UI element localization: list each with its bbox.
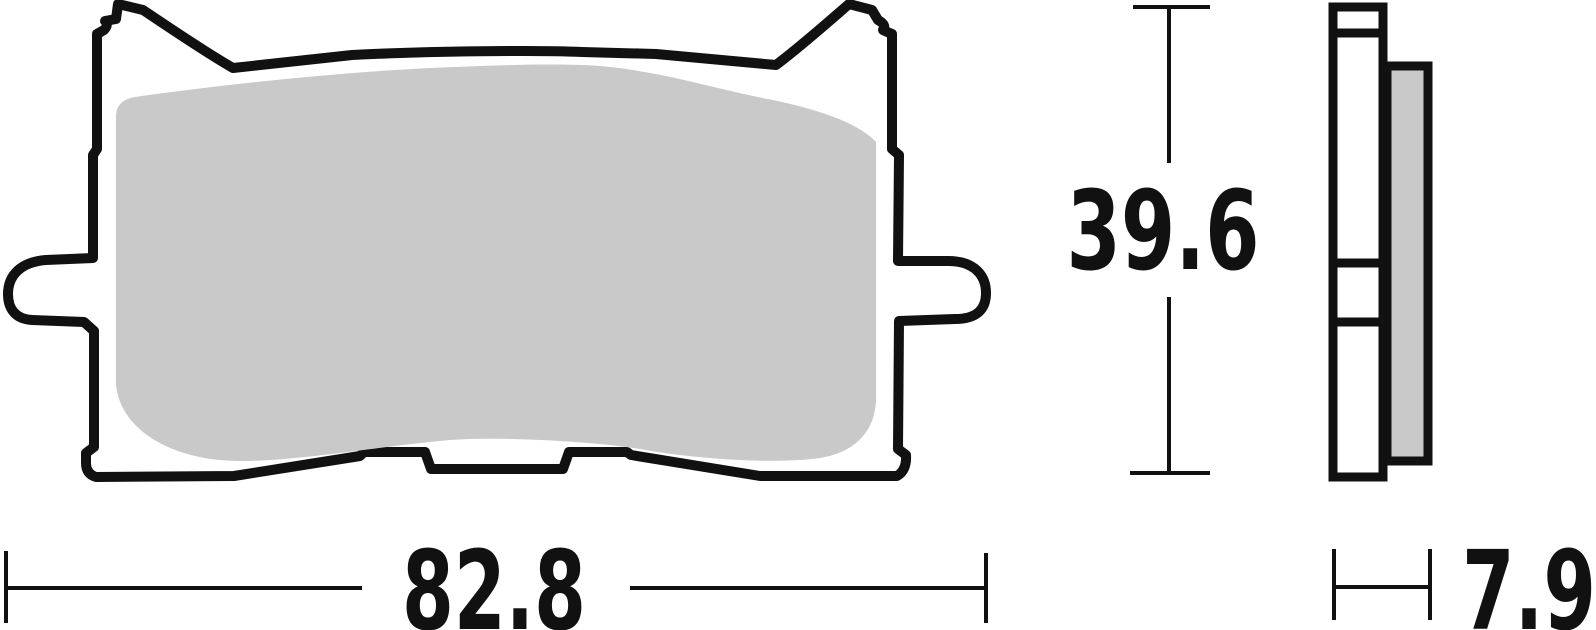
technical-drawing-canvas: 82.8 39.6 7.9 (0, 0, 1596, 630)
thickness-dimension: 7.9 (1334, 527, 1596, 630)
side-view (1333, 7, 1428, 477)
front-view (8, 4, 986, 477)
height-dimension-label: 39.6 (1067, 167, 1260, 295)
width-dimension-label: 82.8 (402, 527, 586, 630)
side-view-friction-pad (1387, 66, 1428, 461)
width-dimension: 82.8 (6, 527, 986, 630)
side-view-backing-plate (1333, 7, 1383, 477)
brake-pad-drawing: 82.8 39.6 7.9 (0, 0, 1596, 630)
thickness-dimension-label: 7.9 (1462, 527, 1596, 630)
height-dimension: 39.6 (1067, 7, 1260, 473)
front-view-friction-surface (116, 65, 876, 461)
